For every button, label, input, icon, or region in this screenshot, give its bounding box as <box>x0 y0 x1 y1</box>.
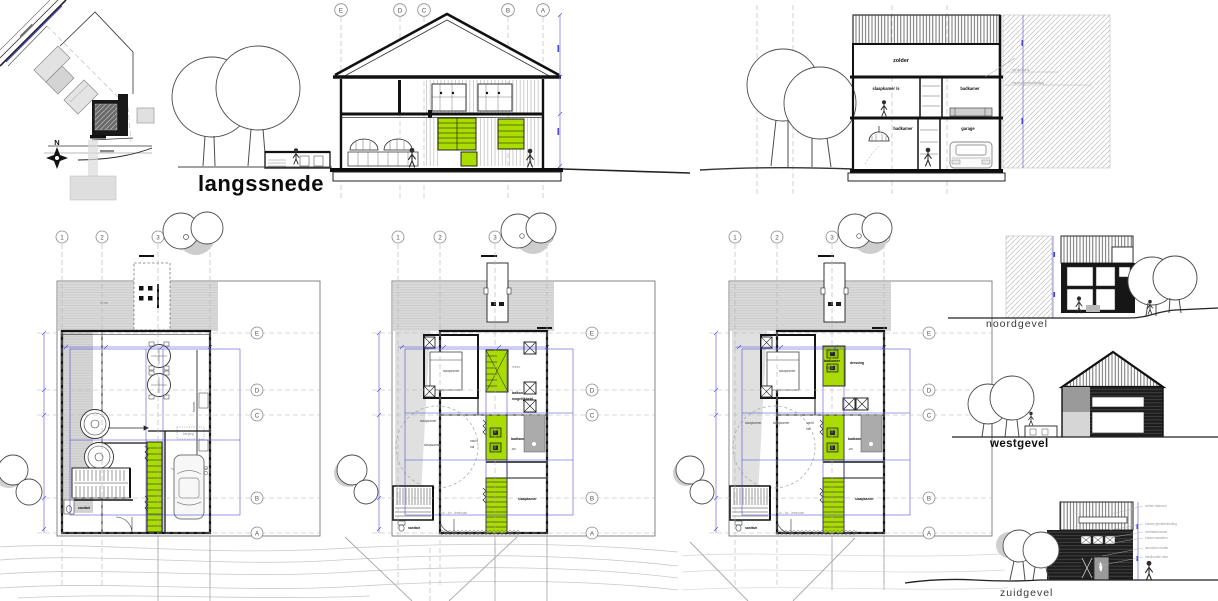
grid-letter: E <box>927 330 931 337</box>
grid-letter: C <box>422 7 427 14</box>
house-section <box>333 14 561 168</box>
grid-letter: C <box>255 412 260 419</box>
grid-letter: B <box>590 495 594 502</box>
roof <box>335 14 559 75</box>
grid-number: 3 <box>156 234 160 241</box>
north-label: N <box>54 138 59 147</box>
neighbour-buildings <box>34 46 98 114</box>
grid-number: 2 <box>100 234 104 241</box>
dimension-line <box>558 13 563 168</box>
wardrobe-xbox <box>524 382 536 394</box>
grid-letter: D <box>398 7 403 14</box>
grid-letter: E <box>255 330 259 337</box>
room-label: -wc <box>848 447 853 451</box>
door <box>1082 557 1109 580</box>
grid-letter: E <box>339 7 343 14</box>
room-label: -wc <box>511 447 516 451</box>
room-label: b.b. - bc - leeshoek <box>440 511 468 515</box>
dimension-line <box>1137 502 1139 580</box>
person-figure <box>881 100 887 116</box>
room-label: nacht <box>470 439 478 443</box>
annotation: aluminium kader <box>1145 546 1169 550</box>
note-label: mogelijkheid <box>512 397 533 401</box>
pavement-block <box>70 176 116 200</box>
annotation: houten gevelbekleding <box>1145 522 1177 526</box>
entry-door-swing <box>116 517 132 533</box>
direction-arrow <box>108 426 148 430</box>
threshold-hatch <box>440 530 520 535</box>
room-label: sanitair <box>408 526 421 530</box>
trees <box>968 376 1034 437</box>
room-label: slaapkamer <box>420 419 437 423</box>
garden-shed-footprint <box>137 108 154 123</box>
shower-block <box>524 415 545 452</box>
floor-plan-upper-1: slaapkamer dress. balkon mogelijkheid sl… <box>334 213 655 585</box>
grid-letter: D <box>927 387 932 394</box>
grid-letter: B <box>927 495 931 502</box>
house-cross-section: zolder slaapkamer /s badkamer badkamer g… <box>850 15 1015 170</box>
vent-windows <box>1081 536 1115 544</box>
attic <box>853 44 1000 77</box>
wardrobe-xbox <box>761 386 772 397</box>
stair-green-upper <box>486 350 508 392</box>
sanitary: sanitair <box>398 521 421 531</box>
room-label: berging <box>183 432 194 436</box>
grid-letter: B <box>506 7 510 14</box>
outbuilding <box>265 148 330 168</box>
room-label: slaapkamer <box>773 421 790 425</box>
elevation-south: zinken dakrand houten gevelbekleding ven… <box>905 502 1218 599</box>
floor-plan-upper-2: slaapkamer badkamer bad dressing slaapka… <box>673 213 992 585</box>
wardrobe-xbox <box>761 337 772 348</box>
room-label: keuken <box>192 401 196 412</box>
grid-number: 1 <box>60 234 64 241</box>
annotation: zinken dakrand <box>1145 504 1167 508</box>
terrain-contours <box>0 536 1008 601</box>
room-label: slaapkamer <box>443 369 460 373</box>
room-label: dress. <box>512 365 521 369</box>
annotation: hardhouten deur <box>1145 555 1169 559</box>
ground-line <box>905 579 1218 583</box>
wardrobe-xbox <box>524 400 536 412</box>
car-top <box>171 455 207 519</box>
storage: berging <box>177 427 204 439</box>
room-label: zolder <box>893 58 910 64</box>
room-label: garage <box>961 126 975 131</box>
room-label: slaapkamer <box>779 369 796 373</box>
grid-letter: B <box>255 495 259 502</box>
grid-number: 3 <box>493 234 497 241</box>
grid-number: 2 <box>438 234 442 241</box>
window-band <box>1092 412 1144 433</box>
trees <box>747 49 856 167</box>
trees <box>1128 256 1197 316</box>
wardrobe-xbox <box>424 337 435 348</box>
roof-window <box>1112 247 1133 263</box>
grid-letter: E <box>590 330 594 337</box>
room-label: hal <box>806 427 811 431</box>
threshold-hatch <box>777 530 857 535</box>
wardrobe-xbox <box>856 398 868 410</box>
shower-block <box>861 415 882 452</box>
note-label: balkon <box>512 391 523 395</box>
north-arrow: N <box>46 138 68 169</box>
section-title: langssnede <box>198 171 324 196</box>
dining-tables <box>148 342 171 399</box>
person-figure <box>1146 561 1153 580</box>
wardrobe-xbox <box>524 342 536 354</box>
room-label: slaapkamer <box>424 443 441 447</box>
room-label: hal <box>470 445 475 449</box>
elevation-title: noordgevel <box>986 318 1048 330</box>
strip-window <box>1079 517 1127 523</box>
roof-band <box>853 15 1000 44</box>
ground-line <box>700 168 1005 181</box>
stair-green <box>145 442 162 532</box>
grid-number: 2 <box>775 234 779 241</box>
annotation: wit stucwerk <box>1012 68 1030 72</box>
hatched-block <box>1003 15 1110 168</box>
annex <box>1025 412 1057 437</box>
person-figure <box>925 148 932 166</box>
wardrobe-xbox <box>843 398 855 410</box>
car-front <box>950 142 992 168</box>
room-label: badkamer <box>893 126 913 131</box>
room-label: sanitair <box>745 526 758 530</box>
bench <box>1086 305 1100 312</box>
elevation-title: zuidgevel <box>1000 587 1053 599</box>
floor-plan-ground: terras keu <box>0 212 320 585</box>
trees <box>172 46 300 166</box>
room-label: sanitair <box>78 506 91 510</box>
section-cross: zolder slaapkamer /s badkamer badkamer g… <box>700 5 1110 195</box>
grid-letter: C <box>927 412 932 419</box>
room-label: dressing <box>850 361 864 365</box>
grid-number: 3 <box>830 234 834 241</box>
room-label: nacht <box>806 421 814 425</box>
roof-band <box>1060 502 1133 530</box>
entrance-mark <box>90 135 106 139</box>
room-label: badkamer <box>960 86 980 91</box>
gable-roof <box>1062 352 1163 387</box>
grid-letter: D <box>255 387 260 394</box>
annotation: houten lamellen <box>1145 536 1168 540</box>
wardrobe-xbox <box>424 386 435 397</box>
stair-hall <box>72 468 133 500</box>
hatched-block <box>1006 236 1052 318</box>
shaft-box <box>134 256 170 330</box>
section-langssnede: E D C B A <box>172 4 690 198</box>
project-building-footprint <box>92 94 128 136</box>
room-label: bad <box>826 366 832 370</box>
grid-letter: C <box>590 412 595 419</box>
room-label: slaapkamer <box>745 421 762 425</box>
annotation: houten gevelbekleding <box>1012 81 1044 85</box>
room-label: slaapkamer <box>518 497 537 501</box>
sanitary: sanitair <box>735 521 758 531</box>
architectural-sheet: N E D C B A <box>0 0 1218 601</box>
room-label: slaapkamer <box>855 497 874 501</box>
annotation: ventilatierooster <box>1145 530 1168 534</box>
garage: garage <box>171 455 207 519</box>
room-label: badkamer <box>824 359 841 363</box>
drawing-canvas: N E D C B A <box>0 0 1218 601</box>
grid-number: 1 <box>733 234 737 241</box>
grid-number: 1 <box>396 234 400 241</box>
room-label: terras <box>100 301 109 305</box>
window-band <box>1092 397 1144 407</box>
street-note-text <box>100 150 114 152</box>
room-label: slaapkamer /s <box>872 86 900 91</box>
person-figure <box>1029 412 1034 425</box>
elevation-title: westgevel <box>989 438 1049 450</box>
elevation-north: noordgevel <box>948 236 1218 330</box>
site-plan: N <box>0 0 154 200</box>
grid-letter: D <box>590 387 595 394</box>
room-label: b.b. - bc - leeshoek <box>777 511 805 515</box>
house <box>1062 352 1163 437</box>
pendant-lamp <box>865 126 889 164</box>
arched-windows <box>348 139 418 166</box>
